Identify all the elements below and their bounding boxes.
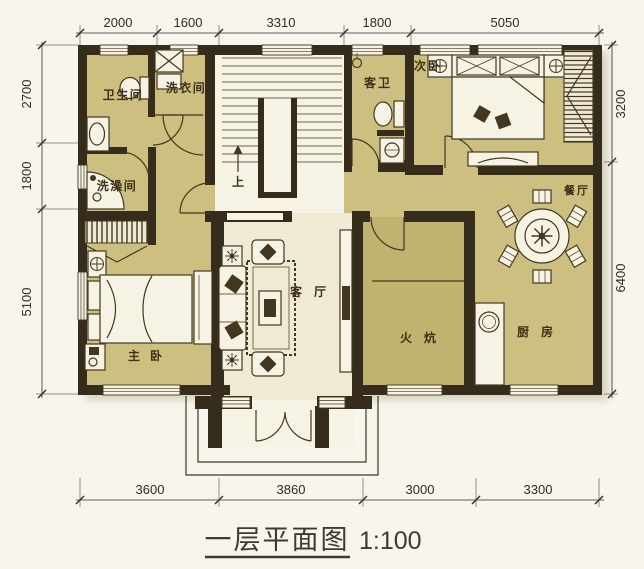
window-second-bedroom-b <box>478 45 562 55</box>
bedroom-cabinet <box>194 271 212 344</box>
wardrobe <box>564 50 593 142</box>
svg-text:3600: 3600 <box>136 482 165 497</box>
label-guest-bath: 客卫 <box>363 75 392 90</box>
shower-head <box>90 175 96 181</box>
stairwell-floor <box>215 55 344 215</box>
dresser <box>468 152 538 166</box>
title-block: 一层平面图 1:100 <box>205 525 422 557</box>
closet-hatch <box>85 221 148 243</box>
armchair <box>252 352 284 376</box>
svg-text:1800: 1800 <box>363 15 392 30</box>
svg-text:3310: 3310 <box>267 15 296 30</box>
window-bathroom <box>100 45 128 55</box>
label-master-bedroom: 主卧 <box>128 348 172 363</box>
dining-chair <box>533 190 551 203</box>
guest-toilet-tank <box>394 101 404 127</box>
guest-bath-shelf-wall <box>377 130 404 136</box>
window-kang <box>387 385 442 395</box>
svg-text:2000: 2000 <box>104 15 133 30</box>
svg-text:3200: 3200 <box>613 90 628 119</box>
tv <box>342 286 350 320</box>
window-vestibule-right <box>319 397 345 408</box>
plan-scale: 1:100 <box>359 527 422 555</box>
label-bathroom: 卫生间 <box>103 87 144 102</box>
svg-text:6400: 6400 <box>613 264 628 293</box>
label-laundry: 洗衣间 <box>166 80 207 95</box>
label-kitchen: 厨房 <box>517 324 565 339</box>
window-vestibule-left <box>222 397 250 408</box>
washbasin-counter <box>87 117 109 151</box>
window-second-bedroom-a <box>420 45 470 55</box>
svg-text:1800: 1800 <box>19 162 34 191</box>
label-living: 客厅 <box>289 284 338 299</box>
kitchen-fixtures <box>475 303 504 385</box>
guest-toilet-bowl <box>374 102 392 126</box>
window-master-bedroom-bottom <box>103 385 180 395</box>
svg-text:5050: 5050 <box>491 15 520 30</box>
label-dining: 餐厅 <box>563 183 590 197</box>
plan-title: 一层平面图 <box>205 525 350 555</box>
armchair <box>252 240 284 264</box>
label-kang: 火炕 <box>400 330 448 345</box>
floor-plan-canvas: 上 <box>0 0 644 569</box>
dining-chair <box>533 270 551 283</box>
porch-column-right <box>315 406 329 448</box>
living-wall-niche <box>227 213 283 220</box>
wall-outer-right <box>593 45 602 395</box>
window-stairwell <box>262 45 312 55</box>
svg-text:5100: 5100 <box>19 288 34 317</box>
window-shower <box>78 165 87 189</box>
svg-text:3000: 3000 <box>406 482 435 497</box>
stair-up-label: 上 <box>232 174 244 189</box>
floor-plan-svg: 上 <box>0 0 644 569</box>
window-master-bedroom-side <box>78 272 87 320</box>
svg-text:1600: 1600 <box>174 15 203 30</box>
master-bed <box>100 275 192 343</box>
guest-basin-cabinet <box>380 138 404 163</box>
svg-text:3860: 3860 <box>277 482 306 497</box>
kang-room-floor <box>363 217 464 389</box>
svg-text:2700: 2700 <box>19 80 34 109</box>
window-kitchen <box>510 385 558 395</box>
svg-text:3300: 3300 <box>524 482 553 497</box>
label-shower: 洗澡间 <box>97 178 138 193</box>
porch-column-left <box>208 406 222 448</box>
label-second-bedroom: 次卧 <box>414 58 442 73</box>
